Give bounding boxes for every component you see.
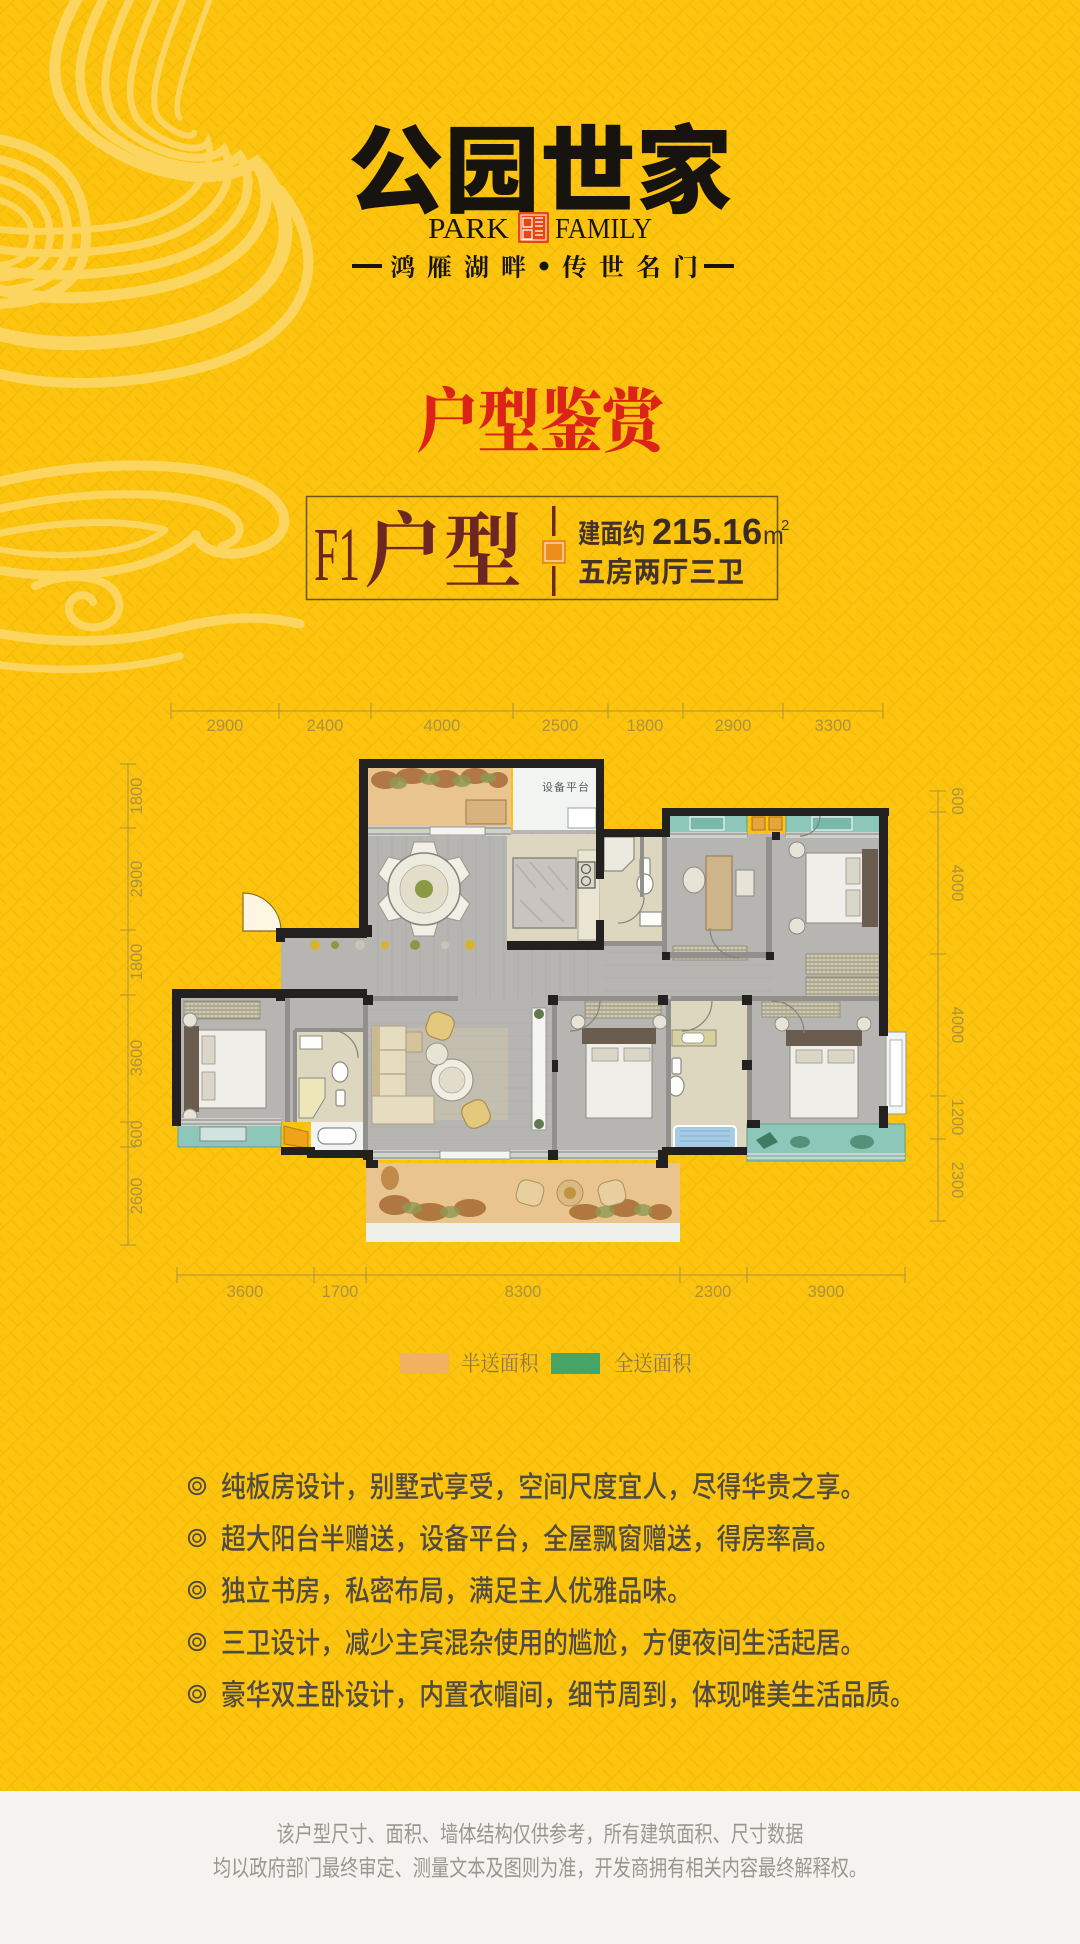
svg-text:2900: 2900 [715,717,752,735]
svg-text:PARK: PARK [428,214,509,245]
svg-text:1800: 1800 [128,944,146,981]
svg-text:3900: 3900 [808,1283,845,1301]
svg-text:F1: F1 [314,513,360,597]
svg-text:600: 600 [948,787,966,815]
svg-text:2900: 2900 [207,717,244,735]
svg-text:3600: 3600 [128,1040,146,1077]
svg-text:8300: 8300 [505,1283,542,1301]
svg-text:2: 2 [781,517,789,534]
svg-text:600: 600 [128,1120,146,1148]
svg-text:2400: 2400 [307,717,344,735]
svg-text:4000: 4000 [948,1007,966,1044]
svg-text:4000: 4000 [424,717,461,735]
svg-text:2600: 2600 [128,1178,146,1215]
svg-text:FAMILY: FAMILY [555,214,652,245]
svg-text:2300: 2300 [948,1162,966,1199]
svg-text:1800: 1800 [128,778,146,815]
svg-text:215.16: 215.16 [652,511,762,552]
svg-text:4000: 4000 [948,865,966,902]
svg-text:2300: 2300 [695,1283,732,1301]
svg-text:3600: 3600 [227,1283,264,1301]
svg-text:1800: 1800 [627,717,664,735]
svg-text:1200: 1200 [948,1099,966,1136]
svg-text:2900: 2900 [128,861,146,898]
svg-text:3300: 3300 [815,717,852,735]
svg-text:2500: 2500 [542,717,579,735]
svg-text:1700: 1700 [322,1283,359,1301]
